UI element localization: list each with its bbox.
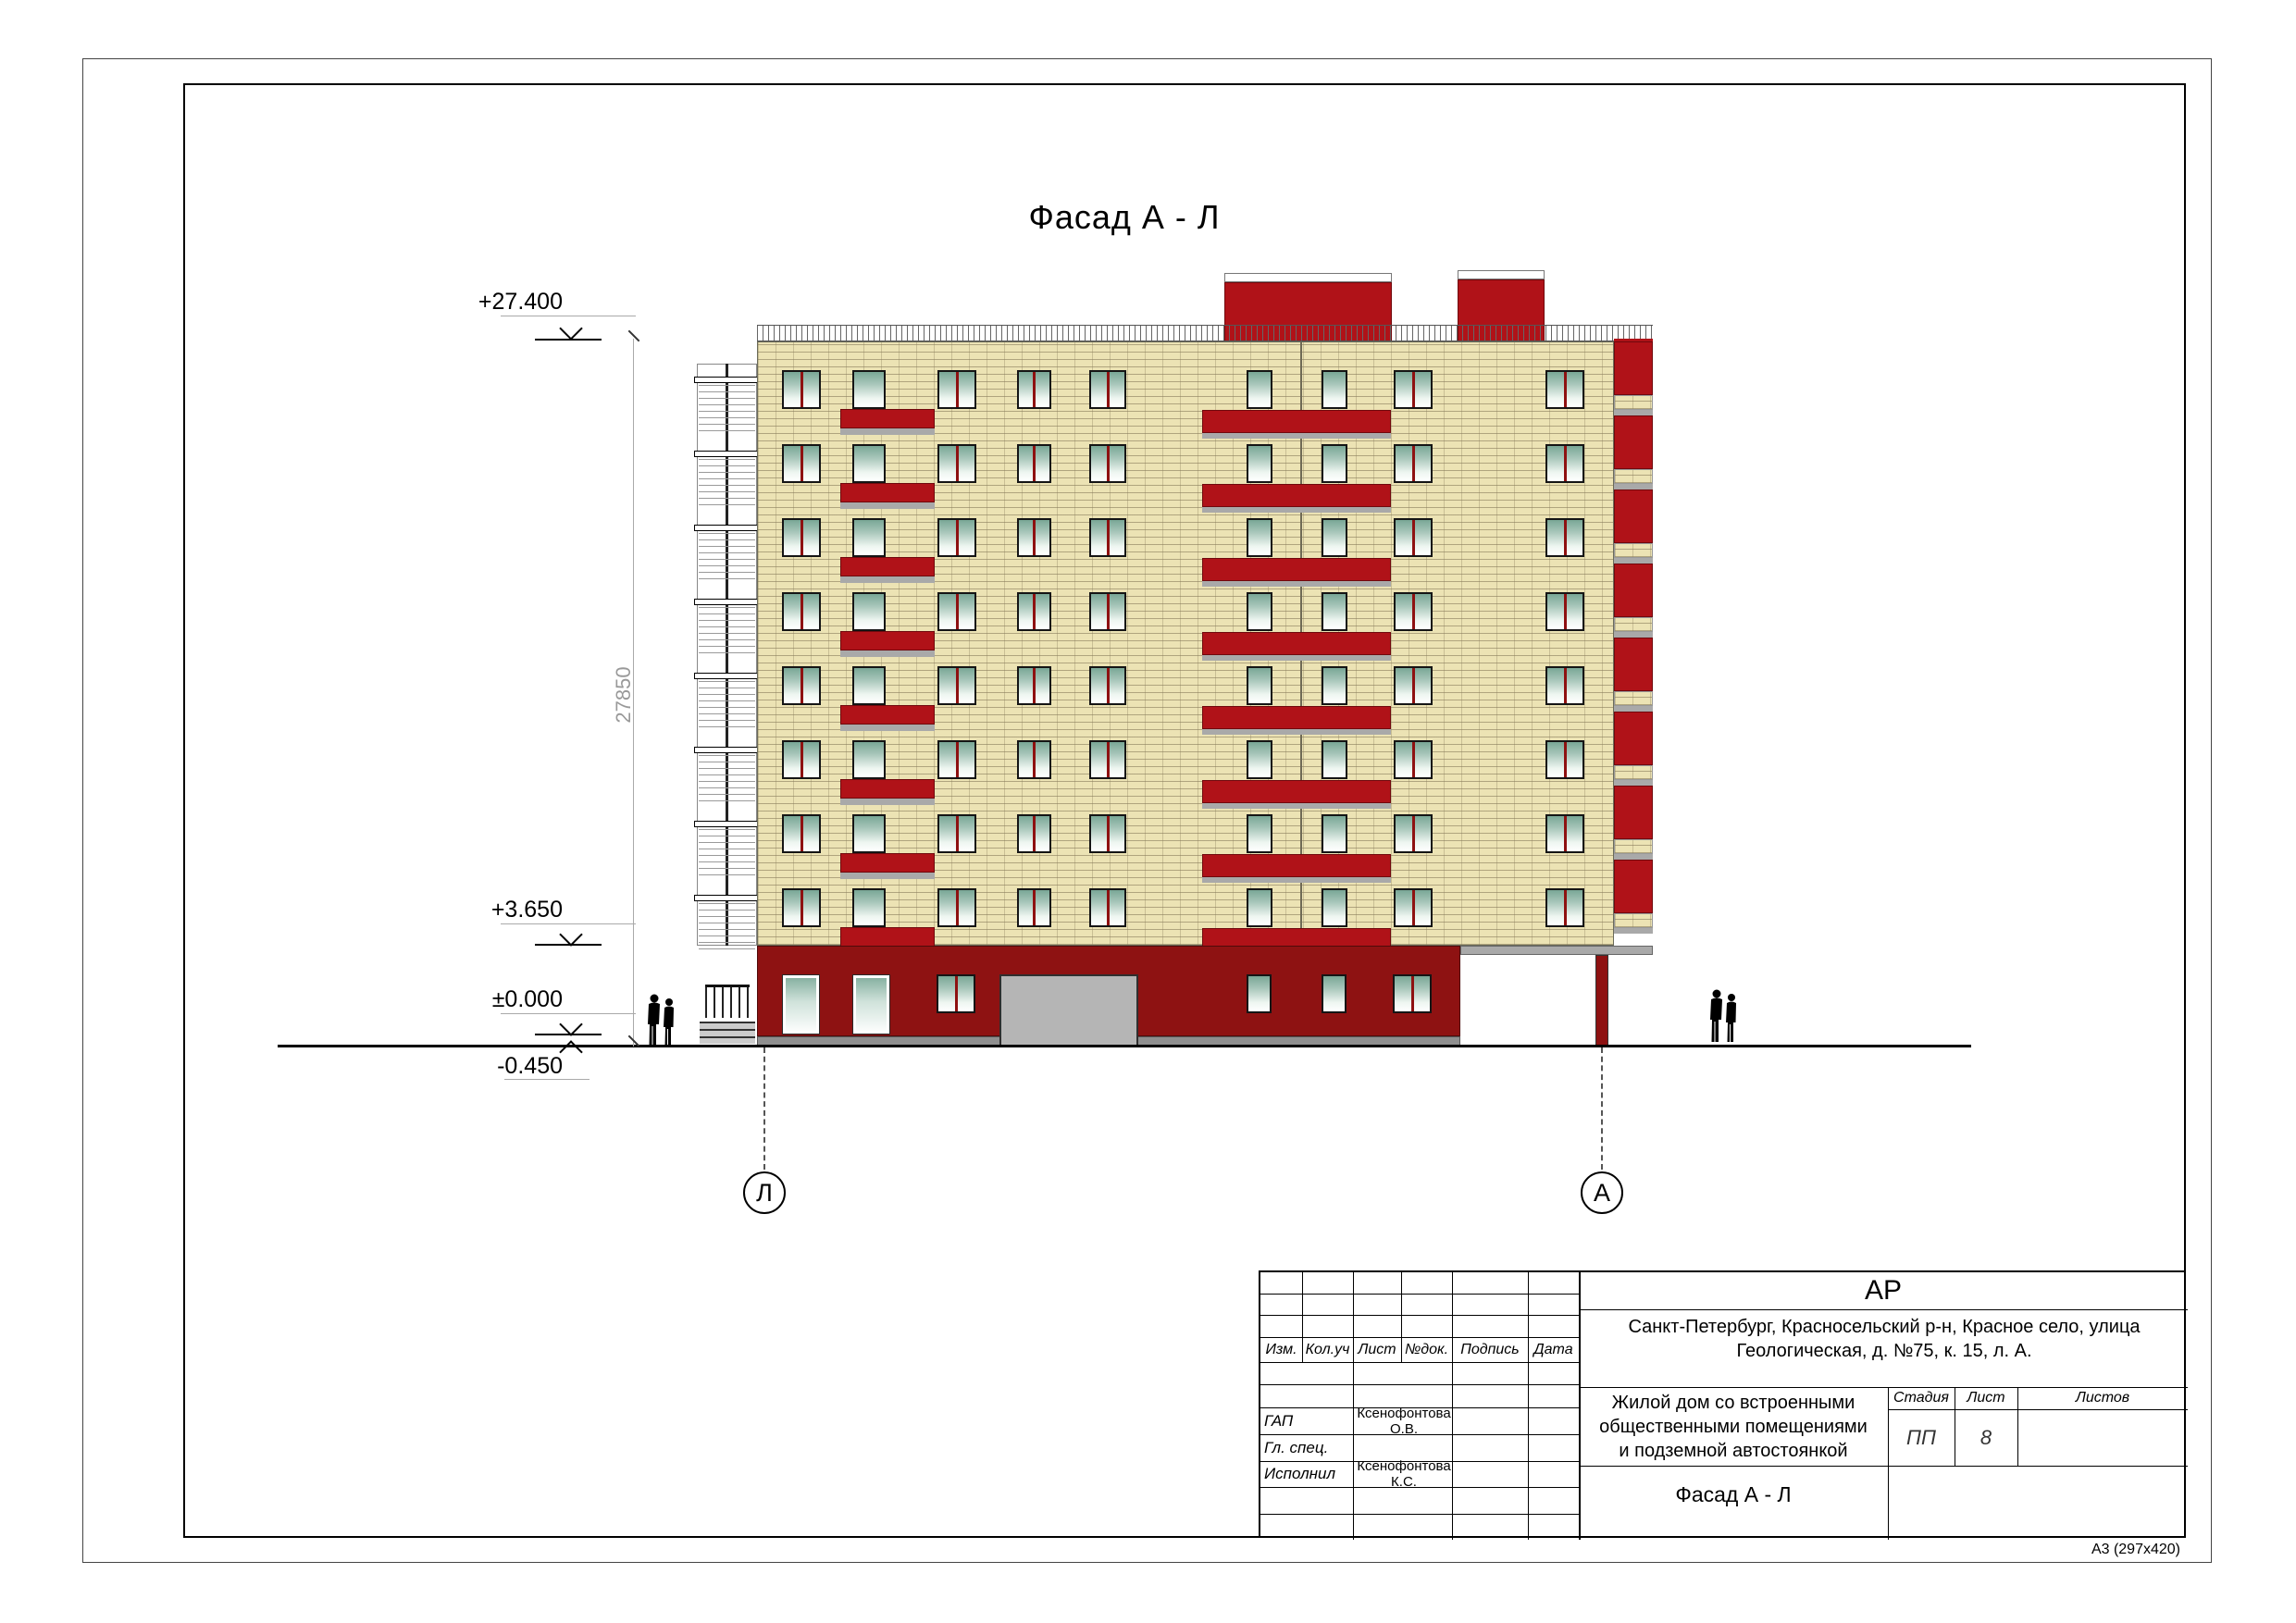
window-mullion	[956, 520, 959, 555]
window	[1247, 518, 1272, 557]
balcony-railing	[699, 533, 755, 585]
balcony-slab	[1202, 581, 1391, 587]
window	[1394, 444, 1433, 483]
window	[782, 370, 821, 409]
end-balcony-recess	[1614, 913, 1653, 928]
tb-col-list: Лист	[1353, 1337, 1401, 1362]
window-mullion	[1564, 668, 1567, 703]
roof-box-cap	[1224, 273, 1392, 282]
tb-col-ndok: №док.	[1401, 1337, 1452, 1362]
title-block: Изм. Кол.уч Лист №док. Подпись Дата ГАП …	[1259, 1270, 2186, 1538]
window	[1545, 666, 1584, 705]
grid-line	[1528, 1272, 1529, 1540]
window	[1322, 888, 1347, 927]
window	[1394, 666, 1433, 705]
balcony	[840, 409, 935, 428]
tb-sheet-label: Лист	[1955, 1387, 2017, 1409]
window-mullion	[1033, 816, 1036, 851]
window-mullion	[1412, 594, 1415, 629]
axis-line-left	[763, 1047, 765, 1170]
tb-doc-code: АР	[1579, 1272, 2188, 1309]
balcony	[840, 631, 935, 650]
window-mullion	[956, 668, 959, 703]
window	[1089, 518, 1126, 557]
window-mullion	[1033, 668, 1036, 703]
end-balcony-recess	[1614, 543, 1653, 558]
window	[937, 518, 976, 557]
window	[1247, 370, 1272, 409]
window-mullion	[1107, 446, 1110, 481]
window	[1322, 518, 1347, 557]
end-balcony	[1614, 860, 1653, 913]
window	[782, 592, 821, 631]
window-mullion	[1564, 816, 1567, 851]
window-mullion	[1564, 594, 1567, 629]
tb-stage-value: ПП	[1888, 1409, 1955, 1466]
balcony-slab	[1202, 729, 1391, 735]
grid-line	[1579, 1466, 2188, 1467]
window-mullion	[1564, 372, 1567, 407]
stair-railing	[705, 985, 750, 1018]
window	[1394, 888, 1433, 927]
window	[1247, 814, 1272, 853]
roof-railing	[757, 325, 1653, 341]
window	[852, 666, 886, 705]
leader-line	[504, 1079, 590, 1080]
window	[1545, 740, 1584, 779]
window	[1322, 814, 1347, 853]
window	[782, 814, 821, 853]
grid-line	[1260, 1315, 1579, 1316]
entrance-door	[852, 974, 890, 1035]
roof-box-cap	[1458, 270, 1545, 279]
balcony-slab	[694, 895, 760, 901]
tb-col-podpis: Подпись	[1452, 1337, 1528, 1362]
axis-line-right	[1601, 1047, 1603, 1170]
balcony-slab	[694, 673, 760, 679]
pilotis-column	[1595, 955, 1608, 1047]
balcony-slab	[694, 451, 760, 457]
tb-role-gap: ГАП	[1264, 1407, 1349, 1434]
window-mullion	[956, 594, 959, 629]
balcony	[1202, 854, 1391, 877]
soffit-slab	[1460, 946, 1653, 955]
window	[1017, 518, 1051, 557]
ground-window	[1322, 974, 1347, 1013]
elevation-ground: -0.450	[461, 1053, 563, 1080]
tb-col-izm: Изм.	[1260, 1337, 1302, 1362]
grid-line	[1260, 1294, 1579, 1295]
window	[1017, 888, 1051, 927]
window-mullion	[956, 816, 959, 851]
window	[1394, 814, 1433, 853]
window	[1322, 666, 1347, 705]
window	[937, 740, 976, 779]
balcony-slab	[694, 747, 760, 753]
elevation-top: +27.400	[461, 289, 563, 316]
balcony	[840, 853, 935, 873]
window	[937, 814, 976, 853]
window-mullion	[800, 742, 803, 777]
window	[1247, 444, 1272, 483]
ground-line	[278, 1045, 1971, 1047]
ground-window	[1247, 974, 1272, 1013]
format-note: А3 (297x420)	[1999, 1542, 2180, 1558]
window	[937, 444, 976, 483]
balcony	[840, 705, 935, 725]
window	[1017, 444, 1051, 483]
window	[1089, 888, 1126, 927]
tb-sheet-name: Фасад А - Л	[1579, 1481, 1888, 1508]
window	[1545, 592, 1584, 631]
window	[1322, 444, 1347, 483]
tb-name-ispolnil: Ксенофонтова К.С.	[1355, 1461, 1453, 1487]
window	[1545, 444, 1584, 483]
window-mullion	[1107, 890, 1110, 925]
window-mullion	[1564, 446, 1567, 481]
end-balcony	[1614, 415, 1653, 469]
axis-bubble-left: Л	[743, 1171, 786, 1214]
window	[1394, 740, 1433, 779]
window-mullion	[1564, 890, 1567, 925]
end-balcony-recess	[1614, 395, 1653, 410]
window-mullion	[1107, 594, 1110, 629]
tb-address-line1: Санкт-Петербург, Красносельский р-н, Кра…	[1586, 1315, 2182, 1339]
window-mullion	[1033, 890, 1036, 925]
balcony-slab	[840, 799, 935, 805]
tb-sheet-value: 8	[1955, 1409, 2017, 1466]
balcony	[1202, 484, 1391, 507]
tb-address-line2: Геологическая, д. №75, к. 15, л. А.	[1586, 1339, 2182, 1363]
end-balcony	[1614, 564, 1653, 617]
window	[1017, 740, 1051, 779]
tb-col-koluch: Кол.уч	[1302, 1337, 1353, 1362]
balcony-slab	[1202, 433, 1391, 439]
balcony-slab	[694, 377, 760, 383]
garage-door	[999, 974, 1138, 1047]
entrance-door	[782, 974, 820, 1035]
grid-line	[1353, 1272, 1354, 1540]
balcony-railing	[699, 681, 755, 733]
stair-step	[700, 1029, 755, 1036]
window	[937, 592, 976, 631]
tb-role-ispolnil: Исполнил	[1264, 1461, 1349, 1487]
window	[1545, 888, 1584, 927]
window	[1545, 370, 1584, 409]
tb-sheets-value	[2017, 1409, 2188, 1466]
level-line	[535, 1034, 602, 1035]
window	[1089, 592, 1126, 631]
balcony-slab	[694, 599, 760, 605]
window-mullion	[956, 742, 959, 777]
balcony-slab	[840, 873, 935, 879]
window-mullion	[1412, 890, 1415, 925]
ground-window	[937, 974, 975, 1013]
tb-project-line2: общественными помещениями	[1579, 1415, 1888, 1439]
tb-project-line3: и подземной автостоянкой	[1579, 1439, 1888, 1463]
end-balcony	[1614, 489, 1653, 543]
window	[1394, 518, 1433, 557]
window	[852, 444, 886, 483]
window-mullion	[1564, 742, 1567, 777]
end-balcony-recess	[1614, 691, 1653, 706]
window	[1545, 518, 1584, 557]
window	[782, 518, 821, 557]
window	[782, 740, 821, 779]
window	[852, 814, 886, 853]
drawing-sheet: Фасад А - Л +27.400 +3.650 ±0.000 -0.450…	[0, 0, 2296, 1623]
ground-window	[1393, 974, 1432, 1013]
balcony-slab	[1202, 803, 1391, 809]
window-mullion	[800, 816, 803, 851]
dimension-value: 27850	[612, 639, 636, 750]
axis-bubble-right: А	[1581, 1171, 1623, 1214]
tb-name-gap: Ксенофонтова О.В.	[1355, 1407, 1453, 1434]
window-mullion	[1033, 520, 1036, 555]
tb-sheets-label: Листов	[2017, 1387, 2188, 1409]
window	[1247, 592, 1272, 631]
balcony	[1202, 558, 1391, 581]
window-mullion	[800, 594, 803, 629]
window-mullion	[1107, 372, 1110, 407]
balcony-slab	[1614, 928, 1653, 934]
grid-line	[1260, 1514, 1579, 1515]
window-mullion	[955, 976, 958, 1011]
balcony-slab	[840, 725, 935, 731]
balcony-railing	[699, 607, 755, 659]
balcony-slab	[1202, 877, 1391, 883]
balcony-slab	[694, 525, 760, 531]
window	[1089, 814, 1126, 853]
balcony-slab	[840, 576, 935, 583]
window-mullion	[1107, 742, 1110, 777]
window-mullion	[1411, 976, 1414, 1011]
end-balcony	[1614, 341, 1653, 395]
window-mullion	[800, 372, 803, 407]
window-mullion	[1033, 372, 1036, 407]
end-balcony	[1614, 712, 1653, 765]
window	[1247, 888, 1272, 927]
window	[1017, 666, 1051, 705]
window-mullion	[1412, 668, 1415, 703]
window	[852, 370, 886, 409]
balcony	[1202, 706, 1391, 729]
balcony-railing	[699, 459, 755, 511]
balcony-slab	[840, 502, 935, 509]
window	[852, 518, 886, 557]
balcony-railing	[699, 385, 755, 437]
end-balcony-recess	[1614, 469, 1653, 484]
window	[1322, 370, 1347, 409]
window	[782, 666, 821, 705]
window-mullion	[1107, 668, 1110, 703]
tb-stage-label: Стадия	[1888, 1387, 1955, 1409]
window	[1545, 814, 1584, 853]
grid-line	[1260, 1384, 1579, 1385]
window	[937, 888, 976, 927]
balcony	[1202, 780, 1391, 803]
window	[1089, 370, 1126, 409]
balcony	[1202, 410, 1391, 433]
end-balcony	[1614, 786, 1653, 839]
balcony-slab	[840, 650, 935, 657]
leader-line	[501, 316, 636, 316]
tb-role-glspec: Гл. спец.	[1264, 1434, 1349, 1461]
window	[937, 666, 976, 705]
balcony	[840, 927, 935, 947]
window-mullion	[1412, 372, 1415, 407]
end-balcony-recess	[1614, 839, 1653, 854]
window	[1247, 740, 1272, 779]
grid-line	[1260, 1362, 1579, 1363]
balcony	[840, 779, 935, 799]
window-mullion	[1033, 446, 1036, 481]
people-silhouette	[643, 993, 682, 1050]
window-mullion	[800, 890, 803, 925]
stair-step	[700, 1022, 755, 1029]
window-mullion	[956, 372, 959, 407]
window	[1322, 592, 1347, 631]
window	[782, 888, 821, 927]
balcony-railing	[699, 903, 755, 955]
window-mullion	[956, 446, 959, 481]
window-mullion	[1412, 520, 1415, 555]
window	[1394, 370, 1433, 409]
window-mullion	[800, 446, 803, 481]
window-mullion	[800, 520, 803, 555]
balcony-slab	[840, 428, 935, 435]
window	[1322, 740, 1347, 779]
end-balcony-recess	[1614, 765, 1653, 780]
window	[782, 444, 821, 483]
stair-step	[700, 1036, 755, 1044]
window	[852, 888, 886, 927]
window	[1089, 740, 1126, 779]
tb-project-line1: Жилой дом со встроенными	[1579, 1391, 1888, 1415]
end-balcony-recess	[1614, 617, 1653, 632]
window	[1089, 444, 1126, 483]
balcony-slab	[1202, 655, 1391, 661]
window-mullion	[1033, 594, 1036, 629]
window-mullion	[1412, 742, 1415, 777]
end-balcony	[1614, 638, 1653, 691]
grid-line	[1579, 1309, 2188, 1310]
window-mullion	[1412, 816, 1415, 851]
window-mullion	[1107, 816, 1110, 851]
window	[1017, 814, 1051, 853]
elevation-second: +3.650	[461, 897, 563, 923]
balcony	[840, 483, 935, 502]
balcony-slab	[1202, 507, 1391, 513]
elevation-zero: ±0.000	[461, 986, 563, 1013]
window-mullion	[1033, 742, 1036, 777]
window	[1089, 666, 1126, 705]
level-line	[535, 339, 602, 341]
window-mullion	[1564, 520, 1567, 555]
window	[852, 740, 886, 779]
window-mullion	[956, 890, 959, 925]
window-mullion	[1412, 446, 1415, 481]
tb-col-data: Дата	[1528, 1337, 1579, 1362]
balcony	[1202, 632, 1391, 655]
balcony	[840, 557, 935, 576]
window	[937, 370, 976, 409]
window	[1394, 592, 1433, 631]
window-mullion	[800, 668, 803, 703]
balcony-slab	[694, 821, 760, 827]
tb-name-glspec	[1355, 1434, 1453, 1461]
window	[1247, 666, 1272, 705]
balcony-railing	[699, 755, 755, 807]
window-mullion	[1107, 520, 1110, 555]
people-silhouette	[1706, 988, 1744, 1046]
window	[852, 592, 886, 631]
level-line	[535, 944, 602, 946]
balcony-railing	[699, 829, 755, 881]
window	[1017, 592, 1051, 631]
window	[1017, 370, 1051, 409]
